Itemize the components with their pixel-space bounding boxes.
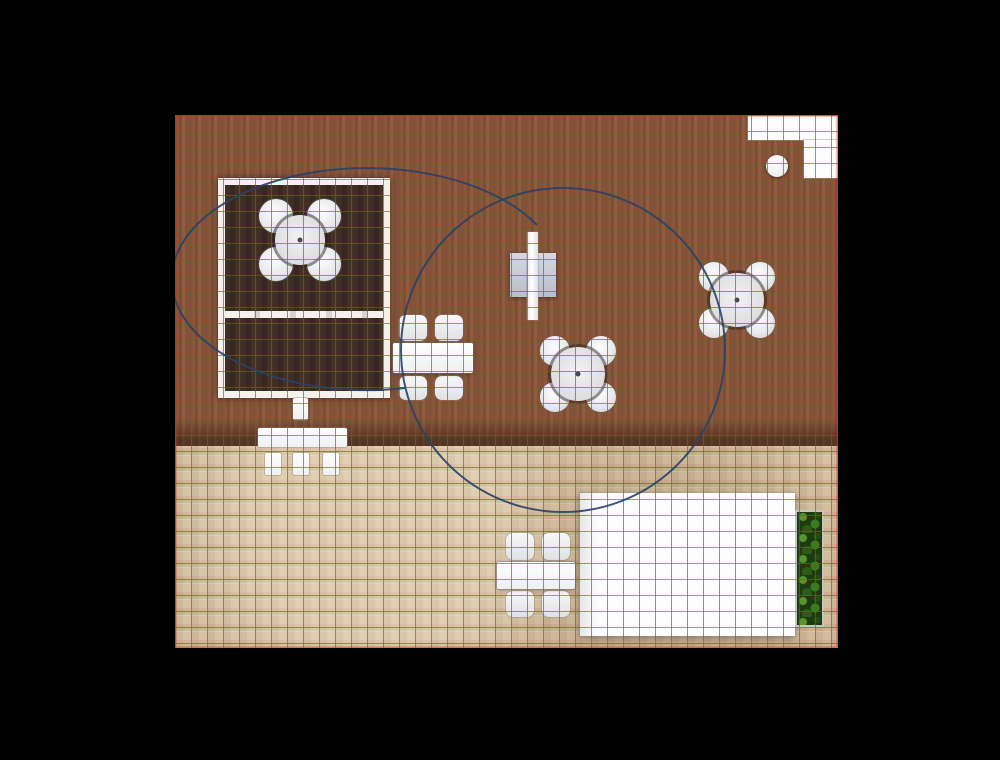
tv-part[interactable] [265,453,281,475]
furniture-layer [175,115,838,648]
chair[interactable] [506,533,534,560]
table-center-dot [298,238,303,243]
hedge-planter[interactable] [797,512,822,625]
chair[interactable] [435,376,463,400]
room-divider-wall[interactable] [224,311,384,318]
tv-part[interactable] [293,398,308,420]
chair[interactable] [399,376,427,400]
tv-screen[interactable] [258,428,347,447]
table-center-dot [735,298,740,303]
tv-part[interactable] [293,453,309,475]
counter-segment[interactable] [748,115,838,140]
dining-table-wood[interactable] [393,343,473,373]
chair[interactable] [506,591,534,617]
table-center-dot [576,372,581,377]
tv-part[interactable] [323,453,339,475]
floor-plan-canvas [175,115,838,648]
bed[interactable] [580,493,795,636]
piano-bench[interactable] [527,232,538,320]
chair[interactable] [542,591,570,617]
chair[interactable] [435,315,463,341]
patio-table[interactable] [497,562,575,589]
walled-room[interactable] [218,178,390,398]
chair[interactable] [542,533,570,560]
chair[interactable] [399,315,427,341]
counter-segment[interactable] [804,140,838,178]
round-table[interactable] [551,347,605,401]
design-viewport [0,0,1000,760]
round-table[interactable] [710,273,764,327]
round-table[interactable] [275,215,325,265]
stool[interactable] [766,155,788,177]
